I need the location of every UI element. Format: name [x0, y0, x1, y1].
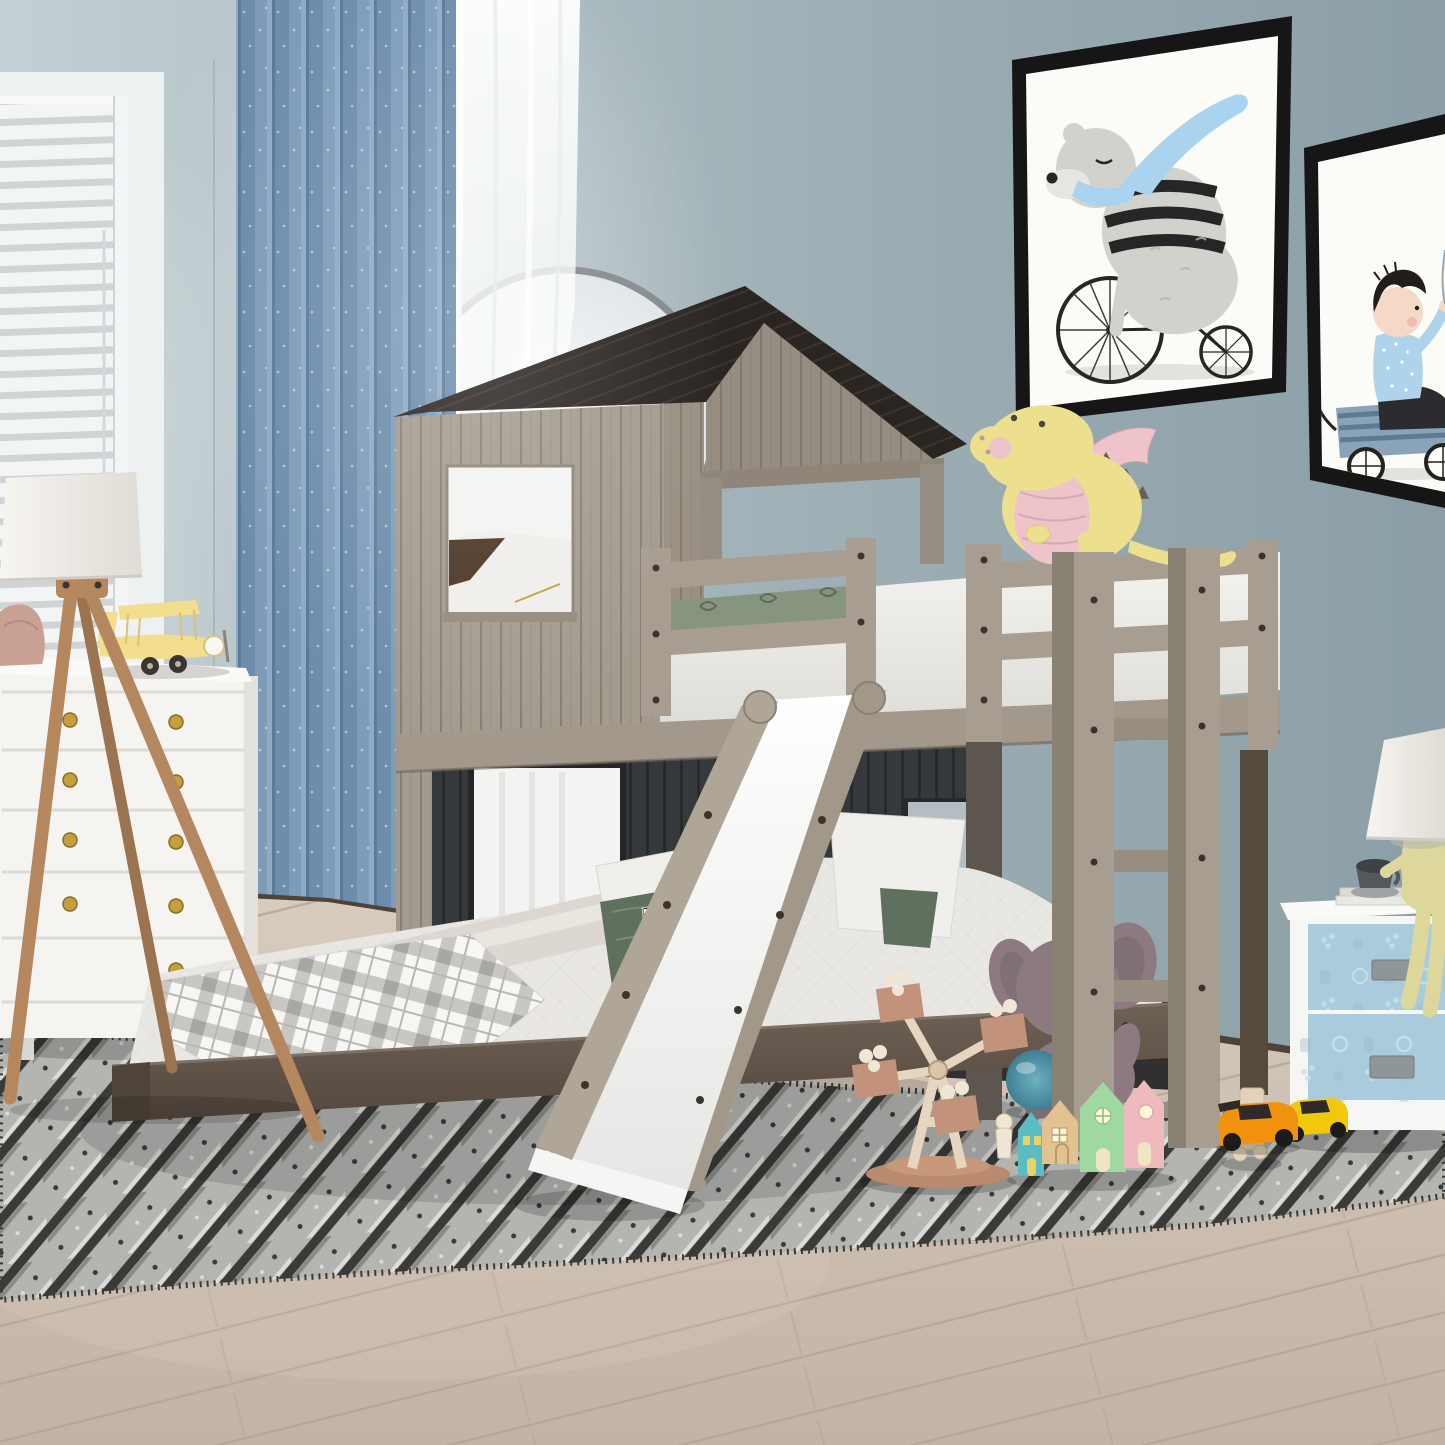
plane-wheel-hub	[175, 661, 181, 667]
ladder-rail-right-side	[1168, 548, 1186, 1148]
wall-art-right	[1304, 114, 1445, 508]
green-house-door	[1096, 1148, 1110, 1172]
windmill-hub	[929, 1061, 947, 1079]
bear-nose	[1047, 173, 1058, 184]
windmill-base-top	[886, 1156, 990, 1176]
dragon-eye	[1039, 421, 1045, 427]
plane-wheel-hub	[147, 663, 153, 669]
dragon-nostril	[980, 436, 985, 441]
hinge-bolt	[63, 582, 70, 589]
wall-art-left	[1012, 16, 1292, 424]
ladder-rail-right	[1186, 548, 1220, 1148]
teal-house-window	[1034, 1136, 1041, 1145]
boy-eye	[1415, 306, 1419, 310]
car-wheel	[1275, 1129, 1293, 1147]
lamp-shadow	[10, 1096, 310, 1124]
orange-car-window	[1238, 1104, 1272, 1120]
figure-hand	[1380, 866, 1392, 878]
car-wheel	[1223, 1133, 1241, 1151]
gable-post-right	[920, 464, 944, 564]
yellow-car-window	[1300, 1100, 1330, 1114]
peg-doll	[996, 1114, 1012, 1158]
teal-house-window	[1023, 1136, 1030, 1145]
rear-post-lower	[1240, 750, 1268, 1095]
rear-post	[1248, 540, 1278, 750]
shade-rim	[1366, 838, 1445, 840]
boy-cheek	[1407, 317, 1417, 327]
green-pillow-right	[880, 888, 938, 948]
slide-rail-cap	[744, 691, 776, 723]
dragon-paw	[1026, 525, 1050, 543]
hinge-bolt	[95, 582, 102, 589]
toy-car-orange	[1216, 1100, 1300, 1155]
slide-rail-cap	[853, 682, 885, 714]
robot-shadow	[1222, 1157, 1282, 1171]
peg-doll-body	[996, 1128, 1012, 1158]
kids-bedroom-photo	[0, 0, 1445, 1445]
ball-highlight	[1016, 1062, 1036, 1074]
plane-nose	[204, 636, 224, 656]
drawer-handle	[1370, 1056, 1414, 1078]
car-wheel	[1330, 1122, 1346, 1138]
dragon-cheek	[989, 437, 1011, 459]
ladder-rail-left-side	[1052, 552, 1074, 1152]
lamp-shade	[0, 472, 142, 580]
bear-ear	[1063, 123, 1085, 145]
biplane-shadow	[90, 665, 230, 679]
pink-house-door	[1138, 1142, 1151, 1166]
teal-house-door	[1027, 1158, 1036, 1176]
dragon-nostril	[986, 450, 991, 455]
dragon-eye	[1011, 415, 1017, 421]
pink-house-window	[1139, 1105, 1153, 1119]
ladder-rail-left	[1074, 552, 1114, 1152]
right-front-post	[966, 544, 1002, 742]
